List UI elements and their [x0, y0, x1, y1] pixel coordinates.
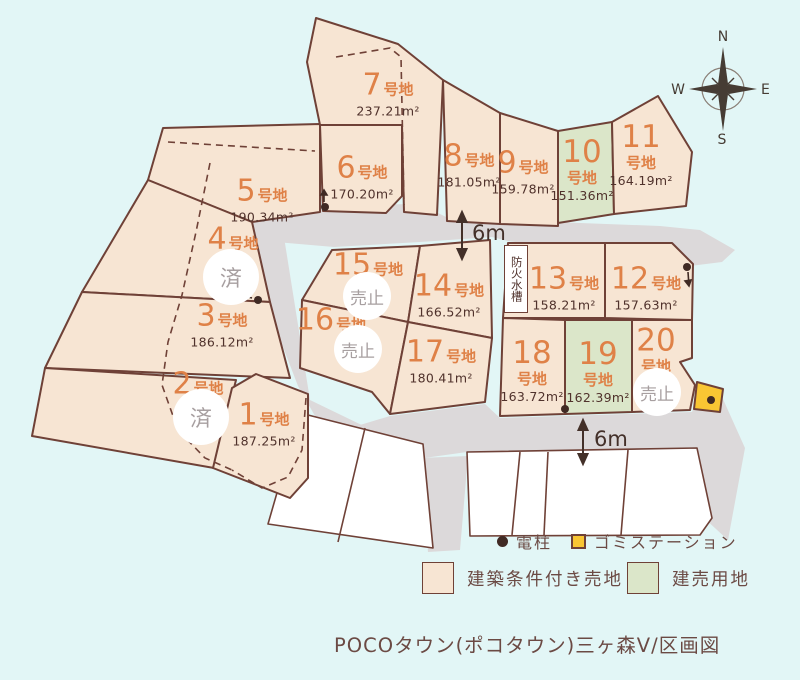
lot-suffix: 号地	[384, 82, 414, 97]
lot-area: 166.52m²	[414, 306, 484, 319]
lot-area: 187.25m²	[232, 435, 295, 448]
status-badge-lot4: 済	[203, 249, 259, 305]
lot-label-17: 17号地 180.41m²	[406, 337, 476, 384]
pole-icon	[707, 396, 715, 404]
lot-number: 7	[362, 70, 381, 101]
legend-built-for-sale-lot: 建売用地	[627, 562, 750, 594]
lot-suffix: 号地	[609, 156, 672, 171]
lot-area: 159.78m²	[491, 183, 554, 196]
lot-label-14: 14号地 166.52m²	[414, 271, 484, 318]
lot-label-11: 11号地 164.19m²	[609, 122, 672, 188]
lot-area: 158.21m²	[529, 299, 599, 312]
lot-number: 12	[611, 264, 649, 295]
road-width-label-top: 6m	[472, 221, 506, 245]
pole-icon	[683, 263, 691, 271]
lot-number: 6	[336, 153, 355, 184]
built-for-sale-swatch	[627, 562, 659, 594]
garbage-station-legend-icon	[571, 534, 586, 549]
lot-number: 11	[609, 122, 672, 154]
lot-label-13: 13号地 158.21m²	[529, 264, 599, 311]
lot-number: 13	[529, 264, 567, 295]
road-width-label-bottom: 6m	[594, 427, 628, 451]
lot-label-19: 19号地 162.39m²	[566, 339, 629, 405]
lot-area: 163.72m²	[500, 391, 563, 404]
status-badge-lot16: 売止	[334, 325, 382, 373]
status-text: 売止	[350, 284, 384, 309]
status-badge-lot2: 済	[173, 389, 229, 445]
lot-label-5: 5号地 190.34m²	[230, 176, 293, 223]
lot-area: 157.63m²	[611, 299, 681, 312]
legend-conditional-label: 建築条件付き売地	[467, 566, 623, 591]
lot-suffix: 号地	[566, 373, 629, 388]
lot-number: 9	[497, 148, 516, 179]
lot-suffix: 号地	[569, 276, 599, 291]
lot-number: 8	[443, 141, 462, 172]
lot-area: 237.21m²	[356, 105, 419, 118]
compass-label-e: E	[761, 82, 770, 98]
lot-number: 18	[500, 338, 563, 370]
legend-pole: 電柱	[497, 529, 552, 553]
lot-number: 20	[636, 326, 675, 358]
fire-tank-text: 防火水槽	[510, 256, 522, 302]
compass-rose: N S W E	[671, 29, 770, 148]
lot-number: 1	[238, 400, 257, 431]
white-lot-group-right	[467, 448, 712, 536]
fire-water-tank-label: 防火水槽	[504, 245, 528, 313]
lot-suffix: 号地	[218, 313, 248, 328]
lot-label-18: 18号地 163.72m²	[500, 338, 563, 404]
pole-icon	[254, 296, 262, 304]
legend-garbage-station: ゴミステーション	[571, 529, 738, 553]
lot-area: 170.20m²	[330, 188, 393, 201]
lot-suffix: 号地	[500, 372, 563, 387]
legend-built-for-sale-label: 建売用地	[672, 566, 750, 591]
compass-label-n: N	[718, 29, 728, 45]
compass-label-s: S	[718, 132, 727, 148]
lot-suffix: 号地	[519, 160, 549, 175]
plot-map-page: N S W E 1号地 187.25m² 2号地 3号地 186.12m² 4号…	[0, 0, 800, 680]
pole-legend-icon	[497, 536, 508, 547]
lot-number: 19	[566, 339, 629, 371]
lot-label-1: 1号地 187.25m²	[232, 400, 295, 447]
lot-suffix: 号地	[651, 276, 681, 291]
legend-pole-label: 電柱	[516, 529, 552, 553]
status-badge-lot15: 売止	[343, 272, 391, 320]
status-text: 売止	[640, 380, 674, 405]
lot-area: 186.12m²	[190, 336, 253, 349]
compass-points	[689, 47, 757, 131]
pole-icon	[561, 405, 569, 413]
lot-area: 180.41m²	[406, 372, 476, 385]
lot-number: 17	[406, 337, 444, 368]
lot-number: 10	[550, 137, 613, 169]
compass-label-w: W	[671, 82, 685, 98]
lot-label-6: 6号地 170.20m²	[330, 153, 393, 200]
lot-area: 151.36m²	[550, 190, 613, 203]
legend-conditional-lot: 建築条件付き売地	[422, 562, 623, 594]
conditional-lot-swatch	[422, 562, 454, 594]
lot-suffix: 号地	[465, 153, 495, 168]
lot-label-9: 9号地 159.78m²	[491, 148, 554, 195]
lot-area: 164.19m²	[609, 175, 672, 188]
lot-number: 14	[414, 271, 452, 302]
lot-suffix: 号地	[446, 349, 476, 364]
page-title: POCOタウン(ポコタウン)三ヶ森V/区画図	[334, 629, 720, 658]
lot-number: 16	[296, 306, 334, 337]
lot-number: 3	[196, 301, 215, 332]
lot-label-7: 7号地 237.21m²	[356, 70, 419, 117]
pole-icon	[321, 203, 329, 211]
lot-label-10: 10号地 151.36m²	[550, 137, 613, 203]
status-text: 済	[220, 261, 242, 293]
lot-suffix: 号地	[358, 165, 388, 180]
lot-number: 5	[236, 176, 255, 207]
status-text: 済	[190, 401, 212, 433]
lot-suffix: 号地	[258, 188, 288, 203]
status-text: 売止	[341, 337, 375, 362]
lot-suffix: 号地	[260, 412, 290, 427]
lot-label-12: 12号地 157.63m²	[611, 264, 681, 311]
lot-suffix: 号地	[550, 171, 613, 186]
lot-suffix: 号地	[454, 283, 484, 298]
lot-area: 190.34m²	[230, 211, 293, 224]
legend-garbage-label: ゴミステーション	[594, 529, 738, 553]
status-badge-lot20: 売止	[633, 368, 681, 416]
lot-area: 162.39m²	[566, 392, 629, 405]
lot-label-3: 3号地 186.12m²	[190, 301, 253, 348]
